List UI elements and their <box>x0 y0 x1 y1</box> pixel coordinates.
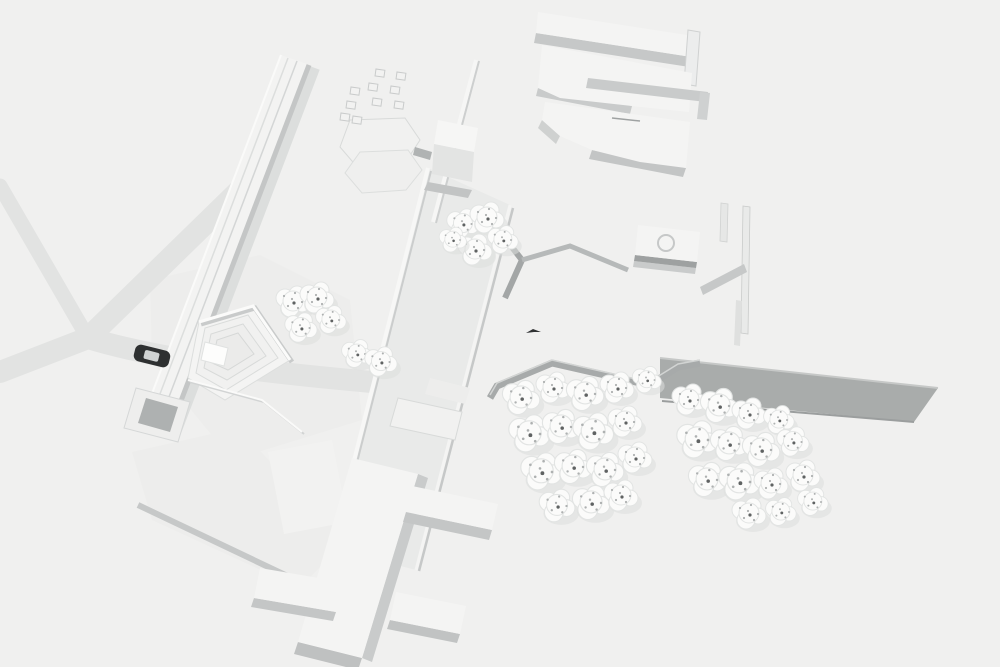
small-block <box>352 116 362 124</box>
site-model-photo <box>0 0 1000 667</box>
small-block <box>396 72 406 80</box>
site-model-render <box>0 0 1000 667</box>
ground-plane <box>0 0 1000 667</box>
pavilion-oculus <box>633 225 700 274</box>
small-block <box>350 87 360 95</box>
small-block <box>368 83 378 91</box>
small-block <box>340 113 350 121</box>
screen-wall-short <box>720 203 728 242</box>
small-block <box>346 101 356 109</box>
small-block <box>372 98 382 106</box>
small-block <box>375 69 385 77</box>
small-block <box>394 101 404 109</box>
small-block <box>390 86 400 94</box>
